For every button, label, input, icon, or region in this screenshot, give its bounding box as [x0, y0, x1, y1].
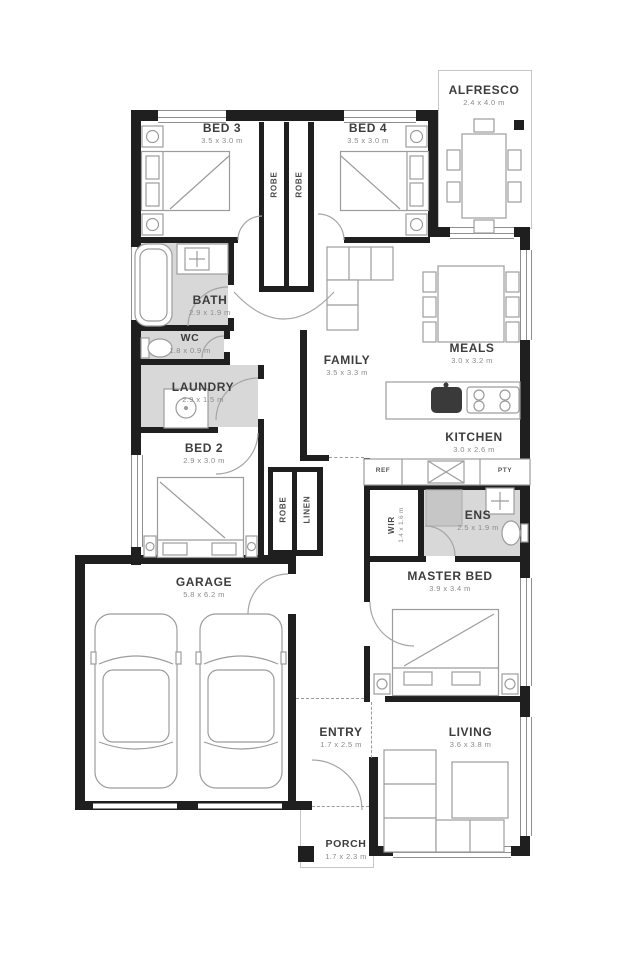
room-name: ALFRESCO	[440, 84, 528, 97]
room-label-ens: ENS 2.5 x 1.9 m	[438, 509, 518, 532]
room-dims: 2.9 x 1.9 m	[170, 308, 250, 317]
robe-label: ROBE	[295, 165, 304, 205]
room-name: KITCHEN	[428, 431, 520, 444]
room-dims: 2.9 x 3.0 m	[154, 456, 254, 465]
bathtub-icon	[135, 244, 172, 326]
dining-table-icon	[423, 266, 519, 342]
room-label-bed4: BED 4 3.5 x 3.0 m	[318, 122, 418, 145]
linen-label: LINEN	[303, 490, 312, 530]
sofa-icon	[327, 247, 393, 330]
room-dims: 1.8 x 0.9 m	[150, 346, 230, 355]
furniture-layer	[0, 0, 628, 960]
room-name: LAUNDRY	[153, 381, 253, 394]
robe-label: ROBE	[279, 490, 288, 530]
room-label-laundry: LAUNDRY 2.9 x 1.5 m	[153, 381, 253, 404]
room-name: GARAGE	[154, 576, 254, 589]
room-dims: 1.4 x 1.6 m	[398, 507, 405, 542]
room-dims: 2.5 x 1.9 m	[438, 523, 518, 532]
bed-icon	[374, 610, 518, 696]
car-icon	[196, 614, 286, 788]
kitchen-island	[386, 382, 520, 419]
room-name: FAMILY	[307, 354, 387, 367]
room-name: WIR	[387, 516, 396, 534]
room-dims: 3.5 x 3.3 m	[307, 368, 387, 377]
room-name: BED 4	[318, 122, 418, 135]
bed-icon	[144, 478, 257, 558]
floorplan: BED 3 3.5 x 3.0 m BED 4 3.5 x 3.0 m ALFR…	[0, 0, 628, 960]
room-label-family: FAMILY 3.5 x 3.3 m	[307, 354, 387, 377]
room-name: PORCH	[318, 838, 374, 851]
fridge-tag: REF	[368, 467, 398, 474]
room-label-kitchen: KITCHEN 3.0 x 2.6 m	[428, 431, 520, 454]
outdoor-table-icon	[447, 119, 521, 233]
room-name: MEALS	[430, 342, 514, 355]
rug-icon	[452, 762, 508, 818]
room-label-porch: PORCH 1.7 x 2.3 m	[318, 838, 374, 861]
vanity-icon	[177, 244, 228, 274]
room-label-entry: ENTRY 1.7 x 2.5 m	[301, 726, 381, 749]
room-name: WC	[150, 332, 230, 345]
room-name: LIVING	[428, 726, 513, 739]
robe-label: ROBE	[270, 165, 279, 205]
room-dims: 5.8 x 6.2 m	[154, 590, 254, 599]
room-dims: 3.9 x 3.4 m	[405, 584, 495, 593]
room-label-master-bed: MASTER BED 3.9 x 3.4 m	[405, 570, 495, 593]
room-dims: 3.5 x 3.0 m	[318, 136, 418, 145]
room-name: BED 2	[154, 442, 254, 455]
room-dims: 1.7 x 2.3 m	[318, 852, 374, 861]
room-dims: 3.6 x 3.8 m	[428, 740, 513, 749]
room-dims: 2.4 x 4.0 m	[440, 98, 528, 107]
room-name: MASTER BED	[405, 570, 495, 583]
pantry-tag: PTY	[490, 467, 520, 474]
room-name: ENS	[438, 509, 518, 522]
room-dims: 3.0 x 3.2 m	[430, 356, 514, 365]
room-dims: 3.0 x 2.6 m	[428, 445, 520, 454]
wir-label: WIR 1.4 x 1.6 m	[387, 495, 405, 555]
room-label-bed2: BED 2 2.9 x 3.0 m	[154, 442, 254, 465]
room-label-wc: WC 1.8 x 0.9 m	[150, 332, 230, 355]
room-label-alfresco: ALFRESCO 2.4 x 4.0 m	[440, 84, 528, 107]
room-dims: 3.5 x 3.0 m	[172, 136, 272, 145]
room-name: BED 3	[172, 122, 272, 135]
room-dims: 2.9 x 1.5 m	[153, 395, 253, 404]
room-dims: 1.7 x 2.5 m	[301, 740, 381, 749]
room-name: ENTRY	[301, 726, 381, 739]
room-label-bath: BATH 2.9 x 1.9 m	[170, 294, 250, 317]
room-label-meals: MEALS 3.0 x 3.2 m	[430, 342, 514, 365]
car-icon	[91, 614, 181, 788]
room-label-garage: GARAGE 5.8 x 6.2 m	[154, 576, 254, 599]
room-label-living: LIVING 3.6 x 3.8 m	[428, 726, 513, 749]
room-name: BATH	[170, 294, 250, 307]
room-label-bed3: BED 3 3.5 x 3.0 m	[172, 122, 272, 145]
